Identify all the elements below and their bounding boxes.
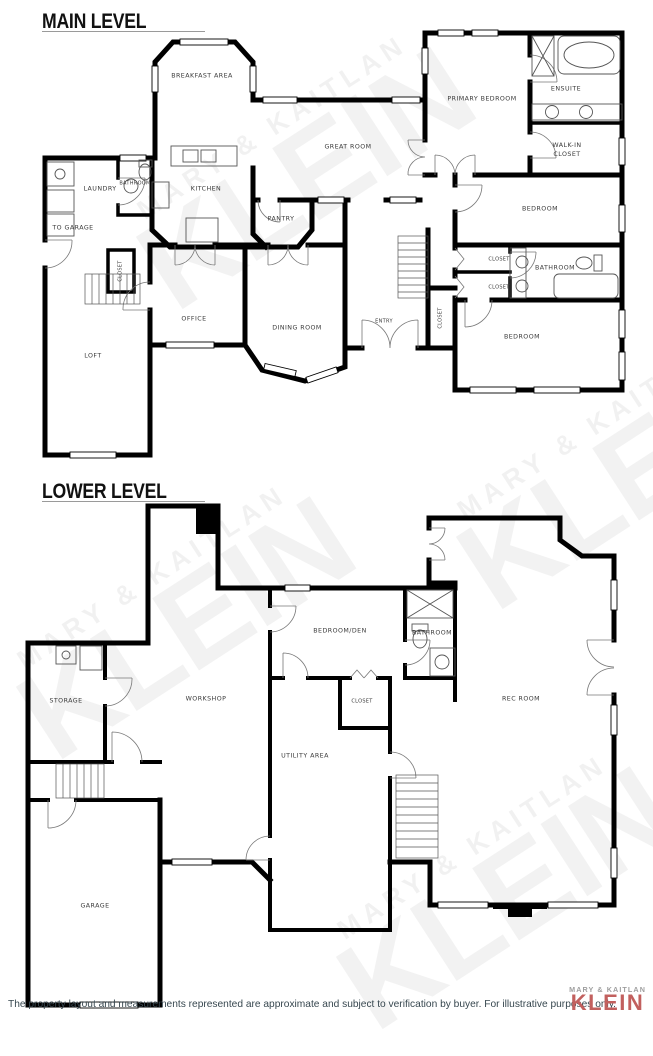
room-label-bedroom-den: BEDROOM/DEN xyxy=(313,628,366,637)
brand-logo-name: KLEIN xyxy=(571,993,645,1013)
room-label-bathroom-lower: BATHROOM xyxy=(412,630,452,639)
room-label-garage: GARAGE xyxy=(80,903,109,912)
room-label-ensuite: ENSUITE xyxy=(551,86,581,95)
room-label-entry: ENTRY xyxy=(375,319,393,326)
room-label-workshop: WORKSHOP xyxy=(186,696,227,705)
disclaimer-text: The property layout and measurements rep… xyxy=(8,999,616,1010)
room-label-dining-room: DINING ROOM xyxy=(272,325,322,334)
labels-layer: BREAKFAST AREAGREAT ROOMPRIMARY BEDROOME… xyxy=(0,0,653,1024)
room-label-primary-bedroom: PRIMARY BEDROOM xyxy=(447,96,516,105)
room-label-breakfast-area: BREAKFAST AREA xyxy=(171,73,233,82)
room-label-closet-w: CLOSET xyxy=(119,260,124,281)
brand-logo: MARY & KAITLAN KLEIN xyxy=(569,986,646,1013)
room-label-closet-r1: CLOSET xyxy=(488,257,509,264)
room-label-utility-area: UTILITY AREA xyxy=(281,753,329,762)
room-label-storage: STORAGE xyxy=(49,698,82,707)
room-label-bathroom-e: BATHROOM xyxy=(535,265,575,274)
room-label-kitchen: KITCHEN xyxy=(191,186,221,195)
room-label-pantry: PANTRY xyxy=(268,216,295,225)
room-label-loft: LOFT xyxy=(84,353,101,362)
room-label-walk-in-closet: WALK-IN CLOSET xyxy=(552,142,581,160)
room-label-laundry: LAUNDRY xyxy=(83,186,116,195)
room-label-bathroom-w: BATHROOM xyxy=(119,181,150,188)
room-label-bedroom-ne: BEDROOM xyxy=(522,206,558,215)
room-label-closet-lower: CLOSET xyxy=(351,699,372,706)
room-label-to-garage: TO GARAGE xyxy=(52,225,93,234)
room-label-office: OFFICE xyxy=(181,316,206,325)
room-label-rec-room: REC ROOM xyxy=(502,696,540,705)
room-label-closet-center: CLOSET xyxy=(439,307,444,328)
room-label-bedroom-se: BEDROOM xyxy=(504,334,540,343)
floor-plan-page: { "watermark": { "line1": "MARY & KAITLA… xyxy=(0,0,653,1024)
room-label-great-room: GREAT ROOM xyxy=(324,144,371,153)
room-label-closet-r2: CLOSET xyxy=(488,285,509,292)
